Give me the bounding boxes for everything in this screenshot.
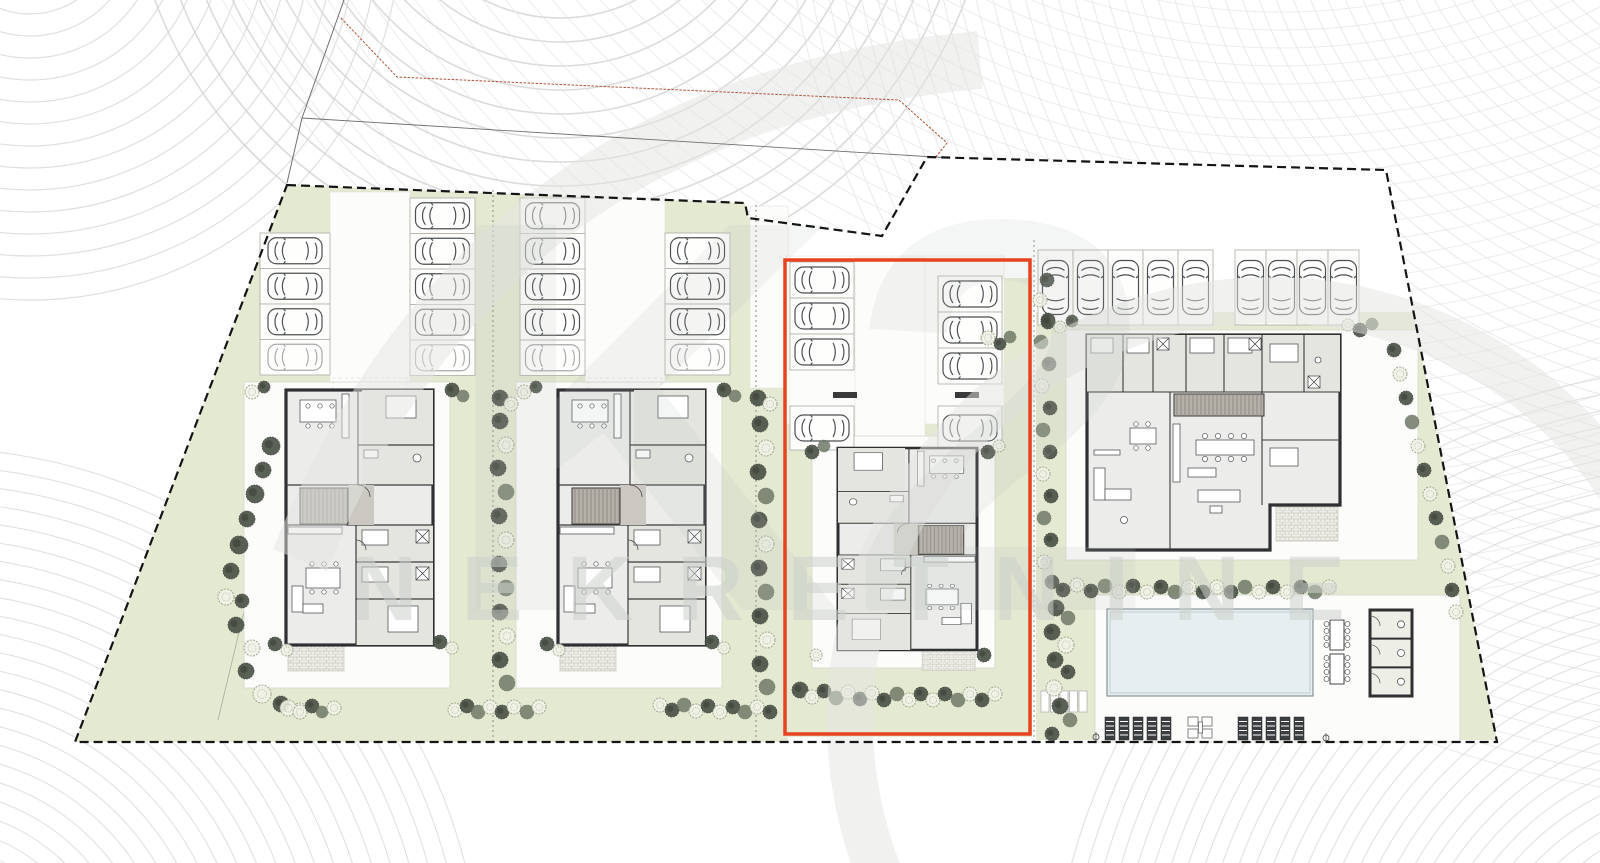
patio-chair [1202,729,1212,738]
contour-arc [1436,0,1600,144]
bath-fixture [413,454,421,462]
terrace-paving [288,645,344,671]
tree-light [1411,439,1425,453]
contour-arc [320,0,800,90]
chair [334,562,338,566]
sun-lounger [1161,717,1171,740]
parked-car [268,309,322,335]
tree-light [253,685,271,703]
chair [1345,656,1350,661]
toilet-fixture [1398,678,1405,685]
coffee-table [1210,506,1222,513]
chair [1324,677,1329,682]
tree-canopy-shadow [240,666,247,673]
chair [318,404,322,408]
chair [306,404,310,408]
chair [1345,643,1350,648]
toilet-fixture [1398,650,1405,657]
contour-arc [0,0,268,168]
tree-light [1441,559,1455,573]
sofa [303,604,323,613]
tree-light [1423,487,1437,501]
tree-light [1449,605,1463,619]
tree-canopy-shadow [237,596,243,602]
car-body [268,344,322,370]
tree-canopy-shadow [270,639,276,645]
patio-table [1199,722,1203,733]
tree-canopy-shadow [307,701,313,707]
bath-fixture [1315,357,1321,363]
sun-lounger [1252,717,1262,740]
bed [1190,338,1214,353]
tree-canopy-shadow [241,514,248,521]
tree-light [281,644,293,656]
tree-light [293,705,307,719]
contour-arc [594,0,1600,66]
tree-canopy-shadow [233,539,241,547]
site-plan-page: K2 NEKRETNINE [0,0,1600,863]
contour-arc [0,0,202,102]
contour-arc [1528,848,1600,863]
contour-arc [0,826,104,863]
chair [1324,656,1329,661]
tree-canopy-shadow [257,465,264,472]
tree-light [1393,367,1407,381]
chair [1345,670,1350,675]
chair [306,424,310,428]
chair [1241,456,1246,461]
chair [1324,670,1329,675]
tree-canopy-shadow [1447,585,1453,591]
chair [334,590,338,594]
chair [1324,663,1329,668]
contour-arc [0,0,158,58]
chair [1228,433,1233,438]
toilet-fixture [1398,621,1405,628]
outdoor-table [1330,654,1344,684]
chair [1215,433,1220,438]
contour-arc [1448,768,1600,863]
tree-canopy-shadow [260,383,265,388]
contour-arc [1372,0,1600,208]
chair [1324,643,1329,648]
contour-arc [0,772,158,863]
parked-car [268,344,322,370]
parked-car [268,273,322,299]
chair [1228,456,1233,461]
dining-table [306,568,340,588]
chair [318,424,322,428]
bed [1270,448,1298,466]
chair [1202,456,1207,461]
terrace-paving [1276,505,1338,541]
tree-medium [316,706,328,718]
chair [1241,433,1246,438]
parked-car [268,238,322,264]
kitchen-island [1188,468,1216,477]
patio-chair [1188,717,1198,726]
parking-group-parcel1-left [260,233,330,375]
chair [1215,456,1220,461]
contour-arc [630,0,1600,30]
sofa [1198,490,1240,502]
sun-lounger [1266,717,1276,740]
patio-chair [1202,717,1212,726]
watermark-company-text: NEKRETNINE [351,538,1389,640]
tree-canopy-shadow [1431,513,1437,519]
chair [310,590,314,594]
chair [1345,663,1350,668]
sun-lounger [1280,717,1290,740]
patio-chair [1188,729,1198,738]
tree-canopy-shadow [1419,465,1425,471]
tree-canopy-shadow [225,566,232,573]
tree-canopy-shadow [230,620,237,627]
tree-light [218,589,234,605]
sofa [292,586,303,612]
tree-canopy-shadow [265,440,273,448]
sun-lounger [1294,717,1304,740]
tree-medium [1405,415,1419,429]
contour-arc [1512,832,1600,863]
contour-arc [1420,0,1600,160]
architectural-site-plan: K2 NEKRETNINE [0,0,1600,863]
tree-canopy-shadow [1389,345,1395,351]
tree-canopy-shadow [249,488,257,496]
kitchen-counter [1173,424,1180,482]
chair [322,590,326,594]
contour-arc [1500,0,1600,80]
contour-arc [0,0,180,80]
car-body [268,309,322,335]
tree-light [327,701,341,715]
tree-light [245,385,259,399]
chair [1202,433,1207,438]
car-body [268,238,322,264]
tree-medium [1435,535,1449,549]
chair [1345,677,1350,682]
staircase-steps [1174,394,1264,416]
tree-canopy-shadow [1047,729,1053,735]
sun-lounger [1238,717,1248,740]
tree-canopy-shadow [1401,393,1407,399]
car-body [268,273,322,299]
chair [330,404,334,408]
contour-arc [1416,736,1600,863]
dining-table [1196,440,1254,455]
tree-light [244,640,260,656]
dining-table [300,400,336,422]
bed [1270,344,1298,362]
bed [1228,338,1252,353]
